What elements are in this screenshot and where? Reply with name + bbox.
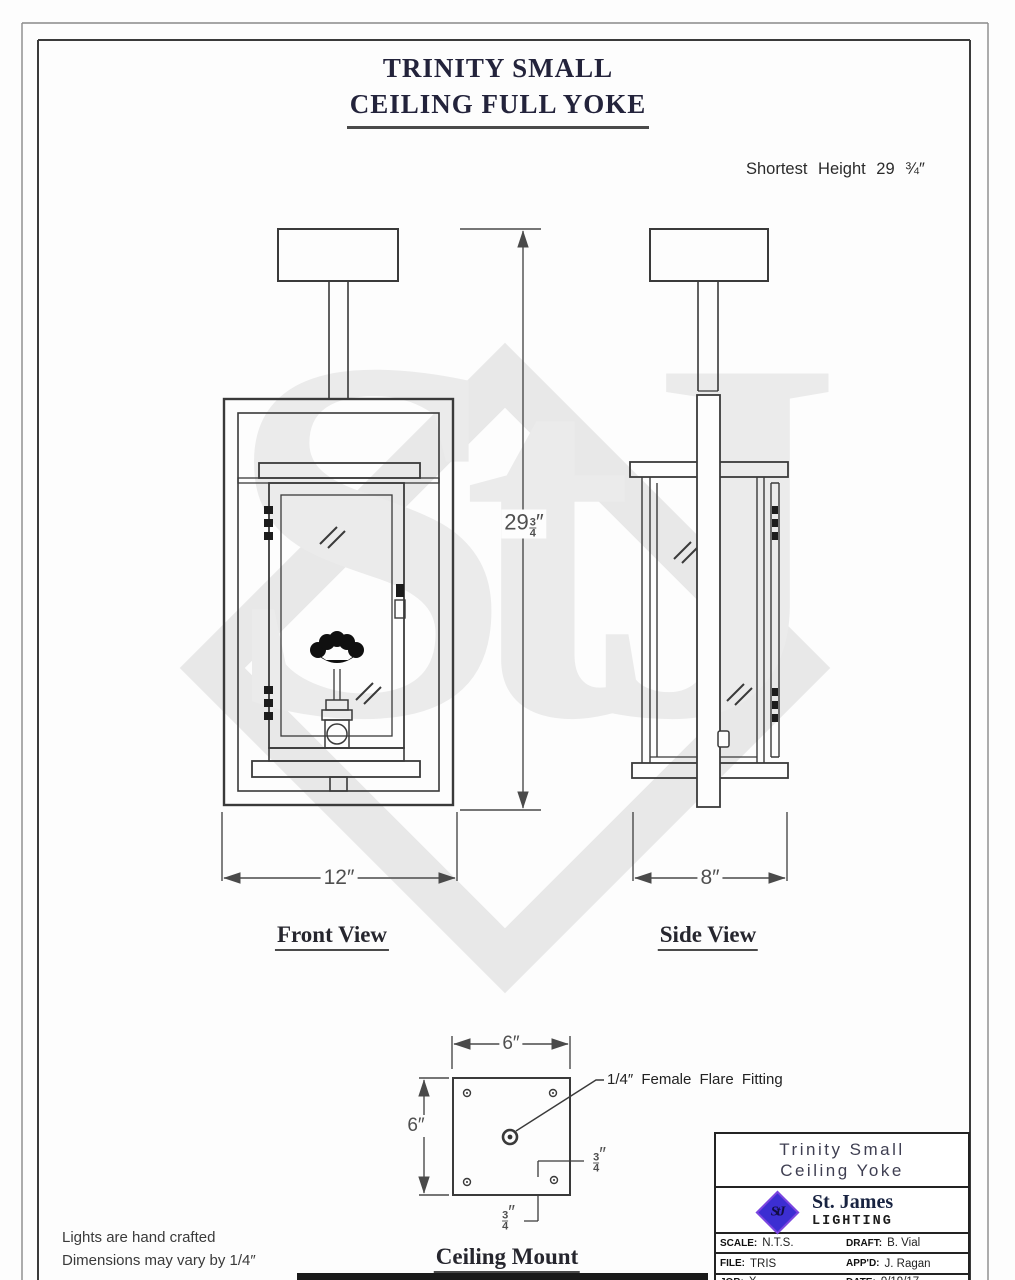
product-name-line2: Ceiling Yoke (716, 1160, 968, 1181)
front-width-dim-label: 12″ (321, 866, 358, 890)
product-name-line1: Trinity Small (716, 1139, 968, 1160)
front-view-drawing (224, 229, 453, 805)
page-title: TRINITY SMALL CEILING FULL YOKE (0, 50, 996, 129)
mount-offset-bottom-label: 34″ (498, 1203, 518, 1232)
company-logo-icon: StJ (756, 1191, 800, 1235)
title-block-company: StJ St. James LIGHTING (716, 1186, 968, 1232)
title-block-row-scale-draft: SCALE: N.T.S. DRAFT: B. Vial (716, 1232, 968, 1252)
draft-field-label: DRAFT: (846, 1238, 882, 1249)
side-door-hinges (772, 506, 778, 722)
side-width-dim-label: 8″ (697, 866, 722, 890)
offset-bottom-lines (524, 1196, 538, 1221)
draft-field-value: B. Vial (887, 1237, 920, 1249)
ceiling-mount-caption: Ceiling Mount (434, 1244, 580, 1270)
flare-fitting (503, 1130, 517, 1144)
scale-field-label: SCALE: (720, 1238, 757, 1249)
sheet-borders (22, 23, 988, 1280)
company-subtitle: LIGHTING (812, 1214, 968, 1229)
drawing-linework (0, 0, 1015, 1280)
date-field-value: 9/19/17 (881, 1276, 919, 1280)
yoke-stem (697, 395, 720, 807)
note-hand-crafted: Lights are hand crafted (62, 1226, 256, 1249)
company-name: St. James (812, 1191, 968, 1214)
side-view-drawing (630, 229, 788, 807)
appd-field-value: J. Ragan (885, 1258, 931, 1270)
date-field-label: DATE: (846, 1277, 876, 1280)
job-field-label: JOB: (720, 1277, 744, 1280)
file-field-label: FILE: (720, 1258, 745, 1269)
fitting-callout: 1/4″ Female Flare Fitting (607, 1071, 783, 1088)
mount-width-dim-label: 6″ (499, 1033, 522, 1055)
ceiling-mount-drawing (453, 1078, 604, 1221)
scale-field-value: N.T.S. (762, 1237, 793, 1249)
flame-finial (310, 631, 364, 663)
shortest-height-note: Shortest Height 29 ¾″ (746, 160, 976, 179)
front-glass-reflections (320, 527, 381, 704)
job-field-value: X (749, 1276, 757, 1280)
mount-offset-right-label: 34″ (589, 1145, 609, 1174)
file-field-value: TRIS (750, 1258, 776, 1270)
front-view-caption: Front View (275, 922, 389, 948)
title-block: Trinity Small Ceiling Yoke StJ St. James… (714, 1132, 970, 1280)
title-block-row-file-appd: FILE: TRIS APP'D: J. Ragan (716, 1252, 968, 1273)
front-height-dim-label: 2934″ (501, 510, 546, 539)
appd-field-label: APP'D: (846, 1258, 880, 1269)
mount-height-dim-label: 6″ (404, 1115, 427, 1137)
note-dimensions-vary: Dimensions may vary by 1/4″ (62, 1249, 256, 1272)
title-block-row-job-date: JOB: X DATE: 9/19/17 (716, 1273, 968, 1280)
title-block-product: Trinity Small Ceiling Yoke (716, 1134, 968, 1186)
drawing-sheet: StJ (0, 0, 1015, 1280)
side-view-caption: Side View (658, 922, 758, 948)
offset-right-lines (538, 1161, 584, 1177)
page-title-line1: TRINITY SMALL (0, 50, 996, 86)
sheet-notes: Lights are hand crafted Dimensions may v… (62, 1226, 256, 1272)
stem-latch (718, 731, 729, 747)
fitting-leader-line (516, 1080, 604, 1131)
page-title-line2: CEILING FULL YOKE (347, 86, 650, 129)
